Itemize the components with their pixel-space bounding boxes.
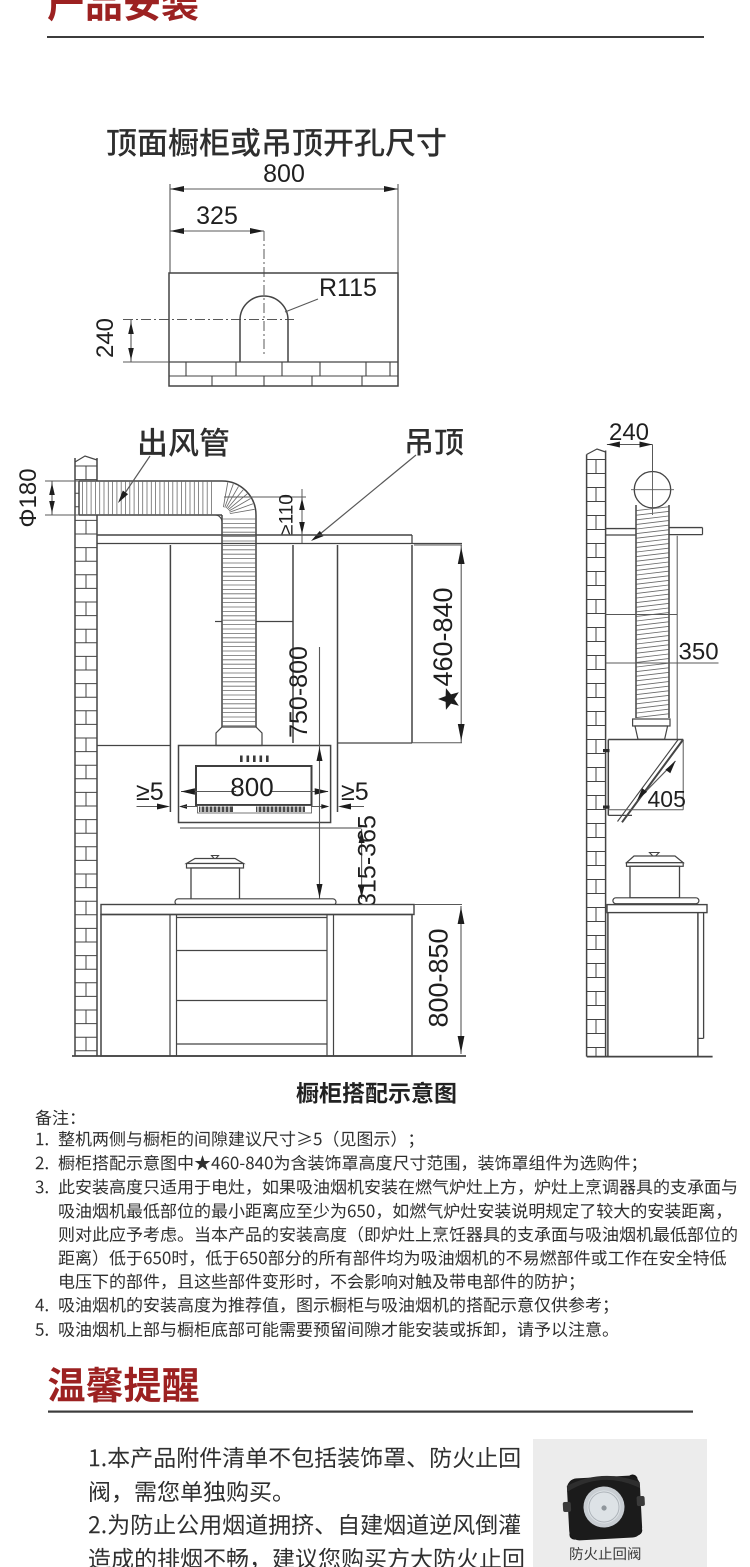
- svg-text:≥110: ≥110: [277, 494, 298, 535]
- svg-text:460-840: 460-840: [428, 587, 458, 686]
- svg-text:≥5: ≥5: [136, 778, 164, 806]
- svg-text:350: 350: [679, 639, 719, 666]
- svg-text:325: 325: [196, 202, 238, 230]
- svg-text:R115: R115: [319, 274, 377, 302]
- svg-text:315-365: 315-365: [354, 815, 382, 907]
- svg-text:≥5: ≥5: [341, 778, 369, 806]
- svg-text:750-800: 750-800: [285, 646, 313, 738]
- svg-text:800-850: 800-850: [424, 928, 454, 1027]
- svg-text:Φ180: Φ180: [15, 468, 42, 527]
- svg-text:405: 405: [648, 786, 686, 812]
- svg-text:240: 240: [609, 419, 649, 446]
- svg-text:800: 800: [263, 160, 305, 188]
- svg-text:240: 240: [92, 318, 119, 358]
- svg-text:800: 800: [230, 772, 273, 802]
